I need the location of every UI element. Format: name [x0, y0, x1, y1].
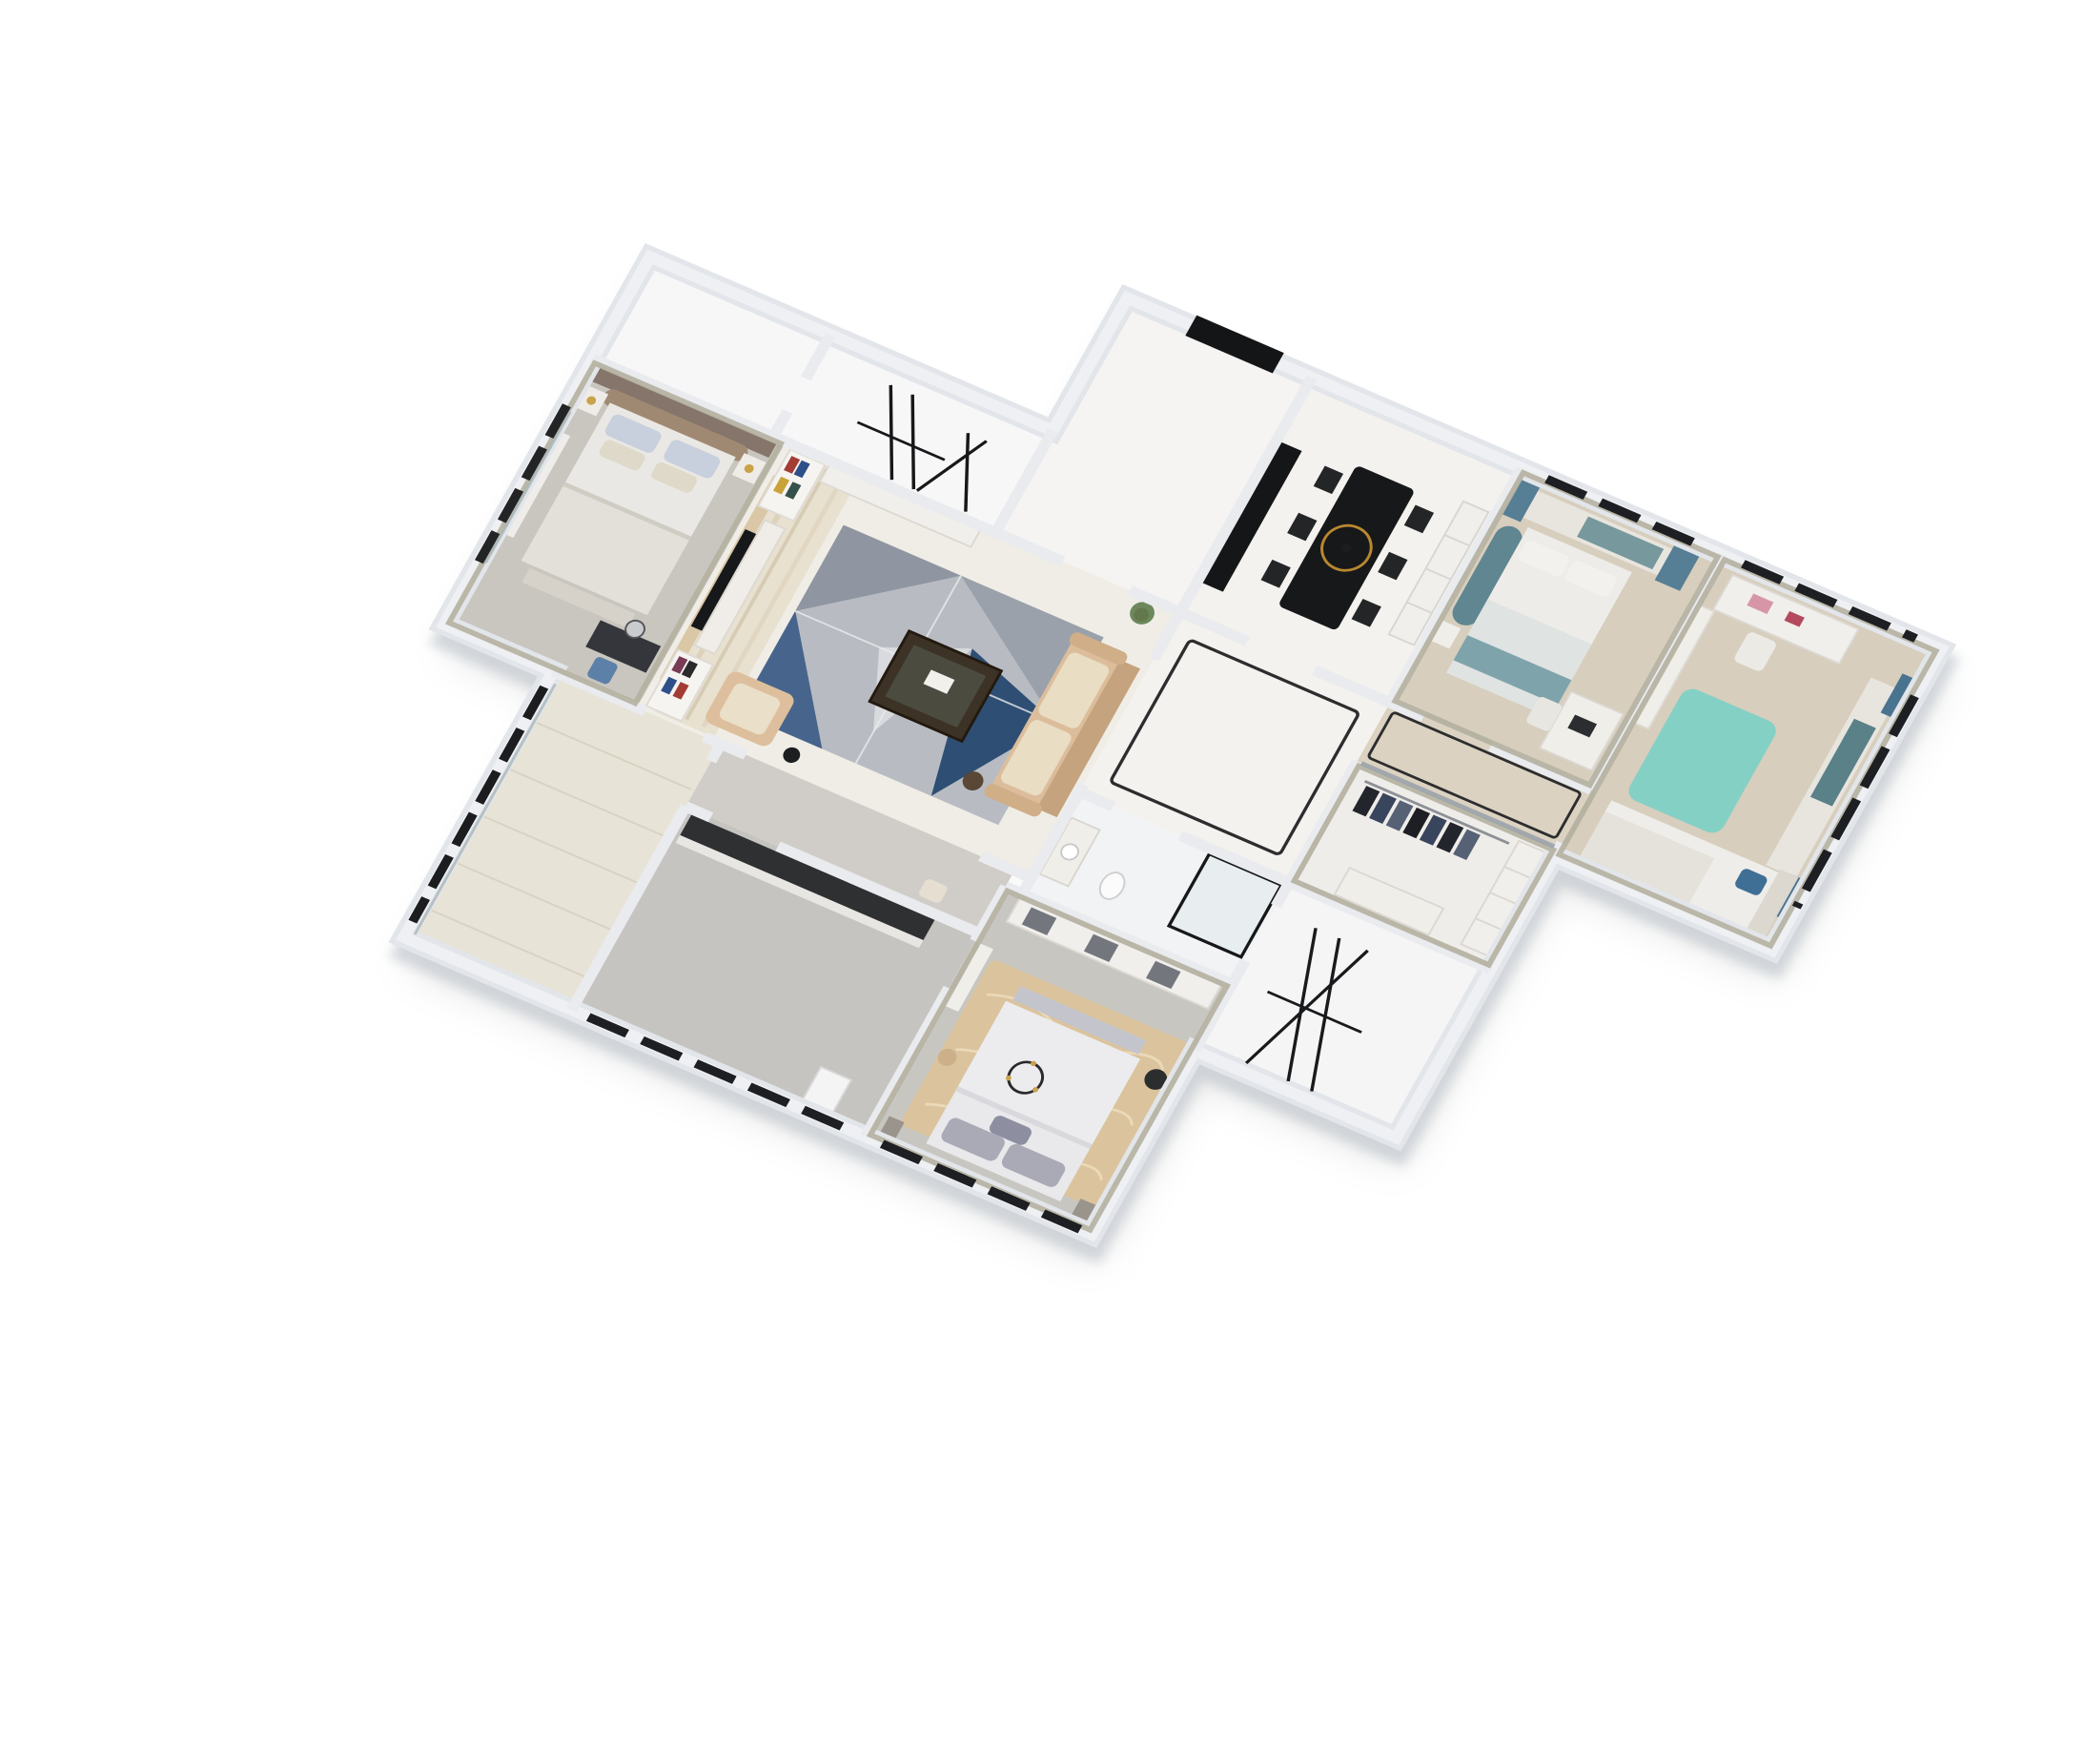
floor-plan-root — [282, 113, 1963, 1445]
apartment-render-canvas — [0, 0, 2085, 1764]
floor-plan-svg — [295, 124, 1941, 1416]
floor-plan-3d-wrapper — [295, 124, 1941, 1416]
